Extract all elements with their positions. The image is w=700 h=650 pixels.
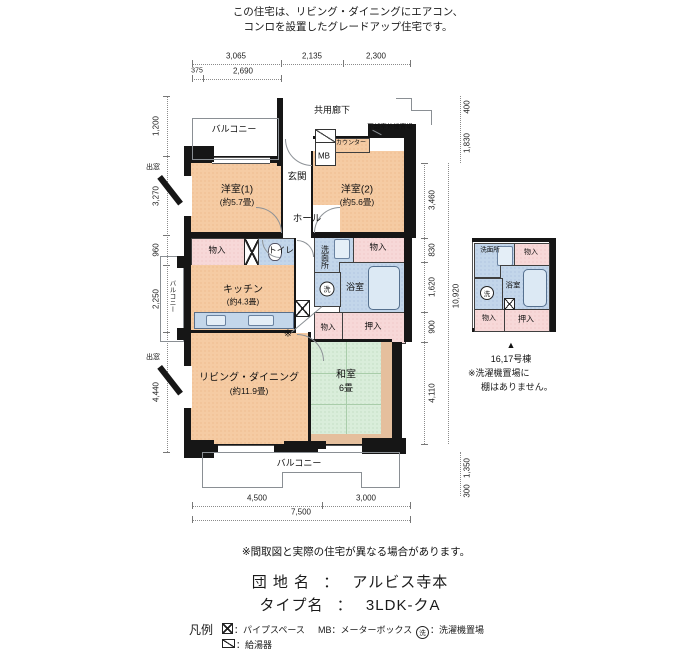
tick (163, 452, 170, 453)
notch-line (411, 110, 432, 111)
subplan-bathtub-icon (523, 269, 547, 307)
subplan-label-washroom: 洗面所 (480, 246, 500, 253)
dim-top-3: 2,300 (366, 52, 386, 61)
legend-mb-label: ：メーターボックス (332, 625, 413, 635)
subplan-pipe-space-icon (504, 298, 515, 310)
dim-right-830: 830 (428, 243, 437, 256)
water-heater-legend-icon (222, 639, 235, 648)
dim-line-right-inner (424, 163, 425, 444)
kitchen-sink-icon (206, 315, 226, 326)
dim-top-1: 3,065 (226, 52, 246, 61)
legend-item-pipe-space: ：パイプスペース (222, 623, 305, 636)
balcony-step (282, 472, 362, 488)
label-western2: 洋室(2) (341, 184, 373, 196)
label-western2-size: (約5.6畳) (340, 198, 374, 208)
tick (163, 235, 170, 236)
dim-bottom-total: 7,500 (291, 508, 311, 517)
wall-kitchen-right (294, 238, 296, 332)
label-kitchen: キッチン (223, 284, 263, 296)
water-heater-icon (315, 129, 336, 143)
bathtub-icon (368, 266, 400, 310)
tick (192, 60, 193, 67)
dim-left-1: 1,200 (152, 116, 161, 136)
tick (421, 262, 428, 263)
label-balcony-left: バルコニー (166, 280, 176, 313)
top-note: この住宅は、リビング・ダイニングにエアコン、 コンロを設置したグレードアップ住宅… (213, 5, 483, 35)
dim-top-4: 375 (191, 68, 203, 75)
label-japanese-size: 6畳 (339, 383, 353, 393)
dim-top-2: 2,135 (302, 52, 322, 61)
wall-entrance-left (281, 138, 283, 238)
dim-line-right-top (460, 96, 461, 163)
tick (410, 516, 411, 523)
subplan-wall-right (549, 238, 556, 332)
label-closet: 押入 (364, 322, 381, 332)
type-name-row: タイプ名 ： 3LDK-クA (0, 594, 700, 615)
dim-line-top1 (192, 64, 410, 65)
subplan-label-closet: 押入 (518, 314, 534, 323)
label-western1: 洋室(1) (221, 184, 253, 196)
label-outdoor-unit: 下部室外機置場 (367, 123, 413, 130)
wall-right-lower (392, 342, 402, 444)
laundry-legend-icon: 洗 (416, 626, 429, 639)
dim-right-300: 300 (463, 484, 472, 497)
label-western1-size: (約5.7畳) (220, 198, 254, 208)
type-name-value: 3LDK-クA (366, 597, 441, 614)
dim-right-total: 10,920 (452, 284, 461, 308)
legend-wash-label: ：洗濯機置場 (430, 625, 484, 635)
tick (343, 60, 344, 67)
notch-line (431, 110, 432, 125)
subplan-note-line1: ※洗濯機置場に (468, 366, 530, 379)
tick (421, 312, 428, 313)
tick (281, 60, 282, 67)
subplan-laundry-circle-icon: 洗 (480, 286, 494, 300)
wall-balcony-block (177, 328, 184, 340)
label-corridor: 共用廊下 (314, 105, 350, 115)
dim-right-3460: 3,460 (428, 190, 437, 210)
top-note-line2: コンロを設置したグレードアップ住宅です。 (213, 20, 483, 35)
label-storage-c: 物入 (321, 324, 336, 333)
label-toilet: トイレ (268, 246, 294, 256)
dim-right-900: 900 (428, 320, 437, 333)
estate-name-value: アルビス寺本 (352, 574, 448, 591)
legend-item-meter-box: MB：メーターボックス (318, 623, 412, 636)
subplan-caption: 16,17号棟 (491, 354, 532, 364)
label-living-size: (約11.9畳) (230, 387, 269, 397)
type-name-sep: ： (337, 597, 353, 614)
subplan-note-line2: 棚はありません。 (481, 380, 553, 393)
dim-left-3: 960 (152, 243, 161, 256)
notch-line (396, 98, 412, 99)
tick (421, 444, 428, 445)
top-note-line1: この住宅は、リビング・ダイニングにエアコン、 (213, 5, 483, 20)
label-bath: 浴室 (346, 282, 364, 292)
label-entrance: 玄関 (287, 173, 306, 184)
wall-japanese-top (311, 339, 392, 342)
legend-mb-key: MB (318, 625, 332, 635)
dim-right-1830: 1,830 (463, 133, 472, 153)
dim-right-1620: 1,620 (428, 277, 437, 297)
label-japanese: 和室 (336, 369, 356, 381)
wall-kitchen-bottom (184, 330, 296, 333)
label-asterisk: ※ (284, 328, 292, 340)
dim-right-1350: 1,350 (463, 458, 472, 478)
subplan-wall-top (472, 238, 556, 242)
dim-line-right-bottom (460, 452, 461, 496)
estate-name-row: 団 地 名 ： アルビス寺本 (0, 571, 700, 592)
label-bay-window-top: 出窓 (146, 164, 160, 172)
subplan-label-bath: 浴室 (506, 282, 521, 291)
label-storage-b: 物入 (369, 243, 386, 253)
tatami-line (311, 404, 381, 405)
tick (410, 502, 411, 509)
tick (203, 75, 204, 82)
subplan-label-storage-bottom: 物入 (482, 315, 496, 323)
dim-line-right-total (448, 163, 449, 444)
tick (163, 156, 170, 157)
tick (192, 75, 193, 82)
laundry-circle-icon: 洗 (320, 282, 335, 297)
dim-line-top2 (192, 79, 281, 80)
subplan-label-storage-top: 物入 (524, 249, 538, 257)
bay-window-icon (157, 365, 183, 395)
legend-item-water-heater: ：給湯器 (222, 638, 272, 650)
bay-window-gap (183, 176, 192, 216)
type-name-label: タイプ名 (260, 597, 324, 614)
dim-left-5: 4,440 (152, 382, 161, 402)
label-counter: カウンター (336, 141, 366, 148)
label-living: リビング・ダイニング (199, 372, 299, 384)
estate-name-label: 団 地 名 (252, 574, 310, 591)
wall-right-upper (404, 124, 416, 238)
wall-right-mid (404, 238, 412, 342)
dim-bottom-3000: 3,000 (356, 494, 376, 503)
tick (421, 342, 428, 343)
tick (322, 502, 323, 509)
label-mb: MB (318, 151, 330, 160)
dim-top-5: 2,690 (233, 67, 253, 76)
legend-pipe-label: ：パイプスペース (234, 625, 305, 635)
dim-left-2: 3,270 (152, 186, 161, 206)
label-hall: ホール (293, 215, 322, 226)
tick (421, 163, 428, 164)
tick (163, 96, 170, 97)
subplan-pointer-icon: ▲ (507, 340, 516, 350)
legend-title: 凡例 (189, 621, 213, 638)
pipe-space-legend-icon (222, 623, 233, 634)
tick (421, 238, 428, 239)
wall-balcony-block (177, 256, 184, 268)
label-balcony-top: バルコニー (212, 124, 257, 134)
label-bay-window-bottom: 出窓 (146, 354, 160, 362)
dim-right-400: 400 (463, 100, 472, 113)
wall-corner-block (284, 441, 326, 449)
disclaimer: ※間取図と実際の住宅が異なる場合があります。 (242, 546, 470, 558)
bay-window-gap (183, 366, 192, 408)
label-balcony-bottom: バルコニー (277, 458, 322, 468)
japanese-edge-strip (381, 342, 392, 434)
label-kitchen-size: (約4.3畳) (227, 297, 259, 306)
legend-heater-label: ：給湯器 (236, 640, 272, 650)
kitchen-sink-icon (248, 315, 274, 326)
label-washroom: 洗面所 (320, 245, 331, 269)
floorplan-page: この住宅は、リビング・ダイニングにエアコン、 コンロを設置したグレードアップ住宅… (0, 0, 700, 650)
tick (281, 75, 282, 82)
tick (192, 502, 193, 509)
label-storage-a: 物入 (208, 246, 225, 256)
tick (192, 516, 193, 523)
washroom-sink-icon (334, 239, 350, 259)
bay-window-icon (157, 175, 183, 205)
tick (410, 60, 411, 67)
pipe-space-icon (295, 300, 310, 317)
dim-right-4110: 4,110 (428, 383, 437, 402)
dim-line-bottom2 (192, 520, 410, 521)
legend-item-laundry: 洗：洗濯機置場 (416, 623, 484, 639)
dim-bottom-4500: 4,500 (247, 494, 267, 503)
estate-name-sep: ： (323, 574, 339, 591)
